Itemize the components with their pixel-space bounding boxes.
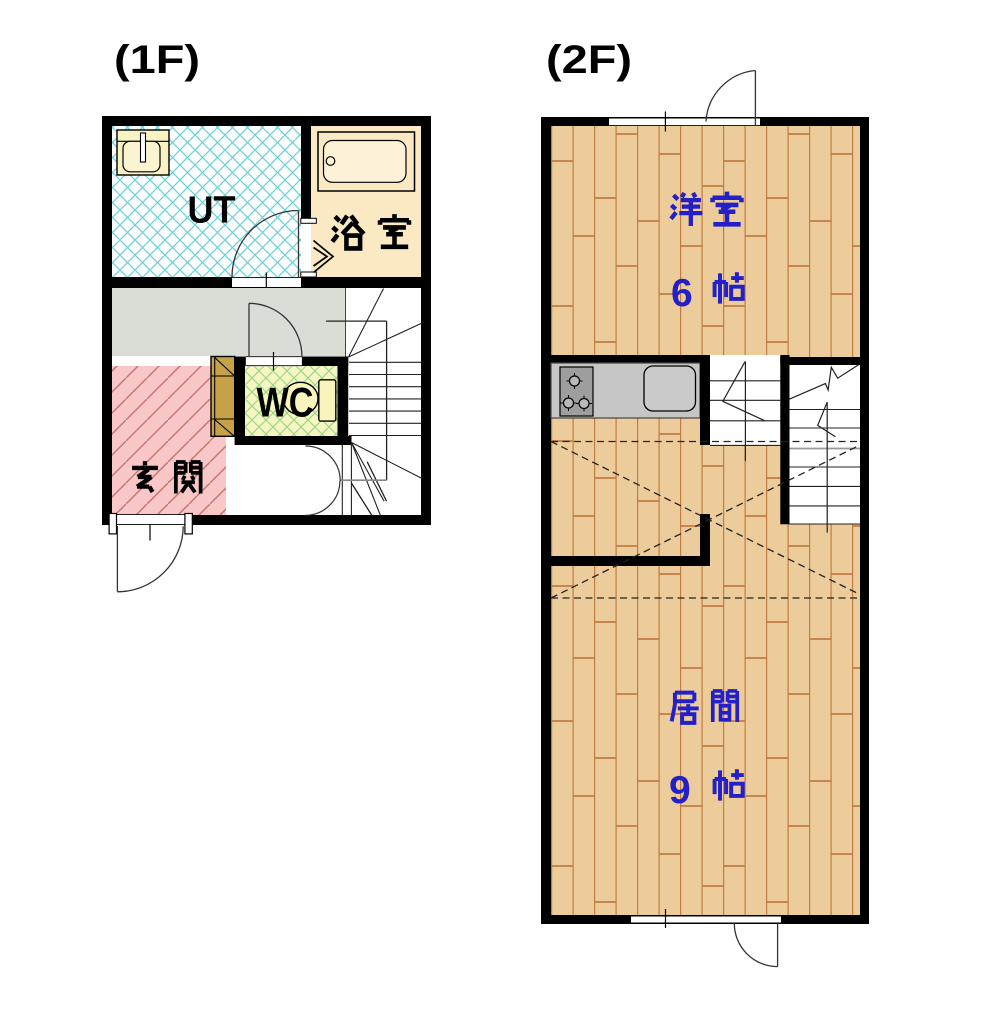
svg-text:6: 6: [671, 272, 693, 315]
svg-text:(1F): (1F): [114, 38, 200, 82]
svg-text:9: 9: [669, 769, 691, 812]
svg-text:WC: WC: [257, 379, 314, 426]
svg-text:(2F): (2F): [546, 38, 632, 82]
svg-text:UT: UT: [188, 190, 236, 232]
